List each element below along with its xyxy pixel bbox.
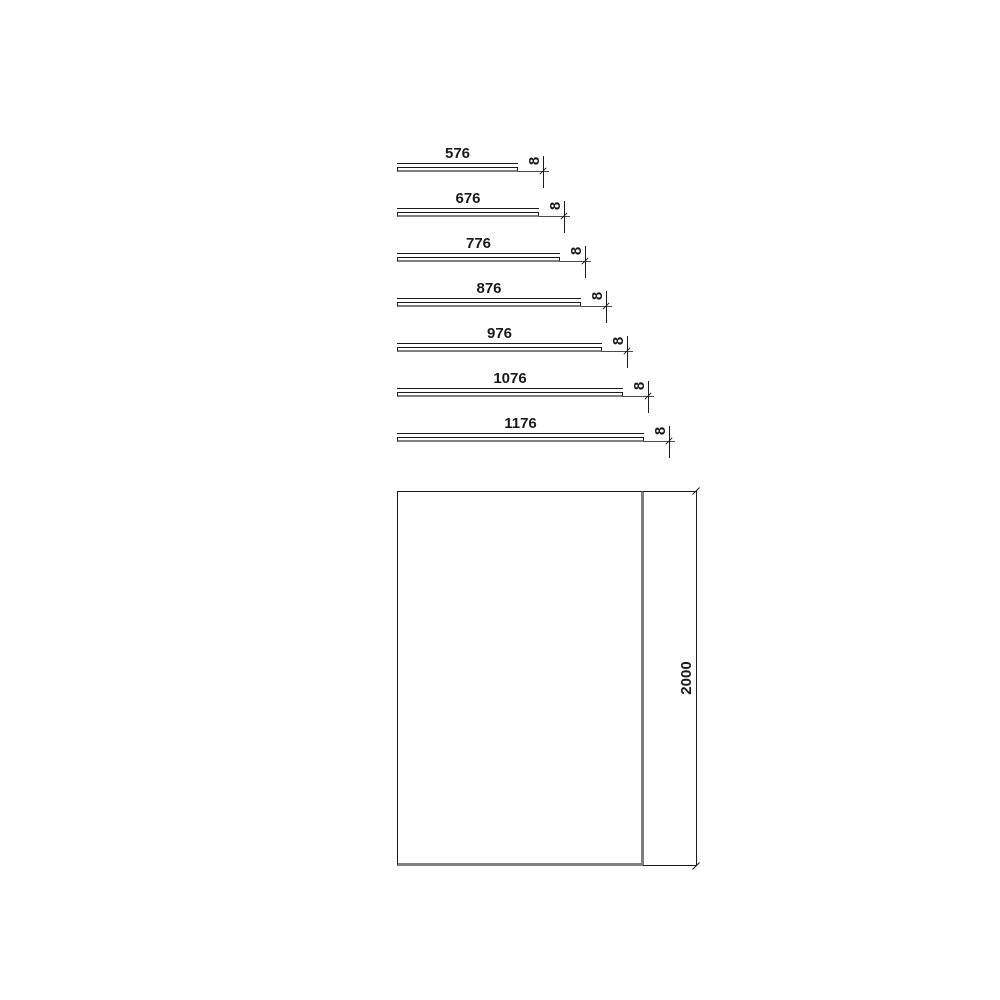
panel-profile-bar xyxy=(397,437,644,442)
panel-profile-bar xyxy=(397,257,560,262)
thickness-dimension-line xyxy=(543,156,544,188)
width-dimension-label: 876 xyxy=(397,281,581,297)
thickness-dimension-label: 8 xyxy=(569,247,585,255)
panel-profile-bar xyxy=(397,167,518,172)
thickness-dimension-label: 8 xyxy=(611,337,627,345)
thickness-extension-line xyxy=(623,396,654,397)
height-top-extension-line xyxy=(643,491,697,492)
thickness-dimension-label: 8 xyxy=(590,292,606,300)
width-dimension-label: 976 xyxy=(397,326,602,342)
width-dimension-label: 1176 xyxy=(397,416,644,432)
dimension-diagram-canvas: 576 8 676 8 776 8 87 xyxy=(0,0,1000,1000)
panel-profile-bar xyxy=(397,212,539,217)
thickness-dimension-label: 8 xyxy=(548,202,564,210)
thickness-dimension-line xyxy=(627,336,628,368)
thickness-dimension-line xyxy=(564,201,565,233)
thickness-dimension-line xyxy=(648,381,649,413)
height-dimension-line xyxy=(696,491,697,866)
thickness-dimension-line xyxy=(669,426,670,458)
panel-profile-bar xyxy=(397,347,602,352)
thickness-extension-line xyxy=(581,306,612,307)
panel-profile-bar xyxy=(397,392,623,397)
thickness-dimension-line xyxy=(585,246,586,278)
thickness-extension-line xyxy=(644,441,675,442)
thickness-extension-line xyxy=(602,351,633,352)
width-dimension-line xyxy=(397,208,539,209)
width-dimension-line xyxy=(397,388,623,389)
panel-profile-bar xyxy=(397,302,581,307)
thickness-dimension-label: 8 xyxy=(527,157,543,165)
width-dimension-line xyxy=(397,343,602,344)
width-dimension-label: 576 xyxy=(397,146,518,162)
thickness-dimension-label: 8 xyxy=(632,382,648,390)
width-dimension-label: 676 xyxy=(397,191,539,207)
width-dimension-line xyxy=(397,253,560,254)
height-bottom-extension-line xyxy=(643,865,697,866)
front-panel-rect xyxy=(397,491,644,866)
thickness-extension-line xyxy=(518,171,549,172)
thickness-extension-line xyxy=(539,216,570,217)
thickness-extension-line xyxy=(560,261,591,262)
width-dimension-label: 1076 xyxy=(397,371,623,387)
width-dimension-line xyxy=(397,298,581,299)
height-dimension-label: 2000 xyxy=(679,661,695,694)
thickness-dimension-line xyxy=(606,291,607,323)
thickness-dimension-label: 8 xyxy=(653,427,669,435)
width-dimension-line xyxy=(397,163,518,164)
width-dimension-line xyxy=(397,433,644,434)
width-dimension-label: 776 xyxy=(397,236,560,252)
